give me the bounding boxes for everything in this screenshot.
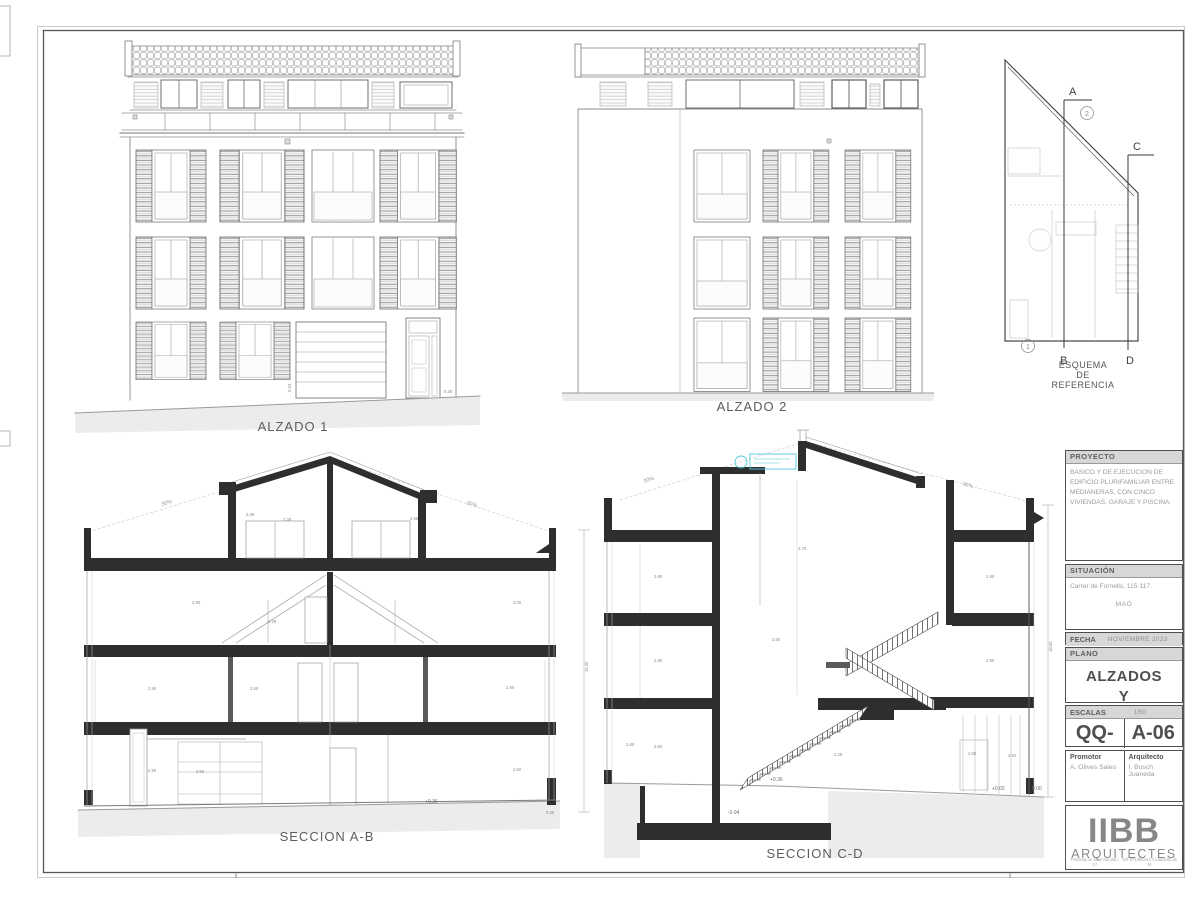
garage-door — [296, 322, 386, 398]
slope-label: 30% — [961, 481, 973, 490]
entry-door — [406, 318, 440, 398]
dim-text: 2.08 — [246, 512, 255, 517]
fecha-value: NOVIEMBRE 2023 — [1108, 636, 1168, 643]
seccion-cd-drawing: 30% 30% — [604, 430, 1054, 861]
sheet-code-left: QQ-40 — [1066, 719, 1125, 748]
dim-text: 3.00 — [513, 600, 522, 605]
proyecto-box: PROYECTO BASICO Y DE EJECUCION DE EDIFIC… — [1065, 450, 1183, 561]
studio-logo: IIBB — [1066, 815, 1182, 847]
slope-label: 30% — [643, 476, 655, 485]
proyecto-text: BASICO Y DE EJECUCION DE EDIFICIO PLURIF… — [1066, 464, 1182, 508]
arquitecto-label: Arquitecto — [1129, 754, 1179, 761]
stair-core-wall — [712, 470, 720, 823]
alzado-2-label: ALZADO 2 — [717, 399, 788, 414]
dim-text: 2.28 — [268, 619, 277, 624]
kitchen-cabinets — [178, 742, 262, 804]
reference-schema: A B C D 1 2 ESQUEMA DE REFERENCIA — [1005, 60, 1154, 390]
fecha-label: FECHA — [1066, 635, 1096, 644]
arquitecto-value: I. Bosch Juaneda — [1129, 764, 1179, 778]
roof-tiles — [645, 48, 919, 75]
dim-text: 4.70 — [798, 546, 807, 551]
stair-wall — [946, 480, 954, 625]
roof-post — [125, 41, 132, 76]
escalas-label: ESCALAS — [1066, 708, 1106, 717]
roof-slope-right — [330, 456, 426, 502]
dim-text: 2.90 — [506, 685, 515, 690]
sheet-code-right: A-06 — [1125, 719, 1183, 748]
plano-box: PLANO ALZADOS Y SECCIONES — [1065, 647, 1183, 703]
structure-cut — [604, 441, 1044, 840]
people-box: Promotor A. Olives Sales Arquitecto I. B… — [1065, 750, 1183, 802]
foundation-slab — [637, 823, 831, 840]
slope-label: 30% — [465, 500, 477, 509]
situacion-header: SITUACIÓN — [1066, 565, 1182, 578]
level-text: +0.36 — [770, 777, 783, 783]
plan-sheet: 0.60 0.36 ALZADO 1 ALZADO 2 — [0, 0, 1200, 900]
escalas-codes-box: ESCALAS 1/50 QQ-40 A-06 — [1065, 705, 1183, 747]
penthouse-openings — [600, 80, 918, 108]
dim-text: 0.36 — [546, 810, 555, 815]
seccion-ab-label: SECCION A-B — [280, 829, 375, 844]
situacion-city: MAÓ — [1066, 601, 1182, 608]
roof-slope-right — [806, 441, 920, 485]
dim-text: 2.85 — [410, 516, 419, 521]
dim-text: 2.86 — [968, 751, 977, 756]
dim-text: 2.84 — [1008, 753, 1017, 758]
dim-text: 2.90 — [148, 686, 157, 691]
floor-slab — [604, 698, 712, 709]
dim-text: 2.50 — [250, 686, 259, 691]
dim-text: 3.50 — [772, 637, 781, 642]
roof-post — [453, 41, 460, 76]
fecha-box: FECHA NOVIEMBRE 2023 — [1065, 632, 1183, 645]
terrace-slab — [84, 558, 556, 571]
dim-text: 2.50 — [654, 744, 663, 749]
marker-1: 1 — [1026, 344, 1030, 351]
escalas-value: 1/50 — [1134, 709, 1146, 716]
floor-slab — [604, 613, 712, 626]
level-text: 0.00 — [1032, 786, 1042, 792]
dim-total: 18.00 — [1048, 641, 1053, 652]
dim-text: 2.90 — [654, 574, 663, 579]
situacion-box: SITUACIÓN Carrer de Fornells, 115-117. M… — [1065, 564, 1183, 630]
dim-text: 2.50 — [196, 769, 205, 774]
proyecto-header: PROYECTO — [1066, 451, 1182, 464]
dim-total: 16.00 — [584, 661, 589, 672]
seccion-cd-label: SECCION C-D — [767, 846, 864, 861]
plano-header: PLANO — [1066, 648, 1182, 661]
esquema-title: ESQUEMA — [1059, 360, 1108, 370]
center-wall — [327, 461, 333, 558]
seccion-ab-drawing: 30% 30% — [78, 452, 590, 844]
dim-text: 0.60 — [287, 383, 292, 392]
stair-steps — [750, 720, 860, 786]
alzado-1-drawing: 0.60 0.36 ALZADO 1 — [75, 41, 480, 434]
arquitecto-cell: Arquitecto I. Bosch Juaneda — [1125, 751, 1183, 801]
marker-2: 2 — [1085, 111, 1089, 118]
dim-text: 2.29 — [834, 752, 843, 757]
level-text: +0.36 — [425, 799, 438, 805]
dim-text: 2.90 — [986, 574, 995, 579]
balcony-railing — [120, 113, 464, 137]
solar-tank-symbol — [735, 454, 796, 469]
dim-text: 2.50 — [513, 767, 522, 772]
alzado-1-label: ALZADO 1 — [258, 419, 329, 434]
dim-text: 2.90 — [654, 658, 663, 663]
esquema-title: REFERENCIA — [1051, 380, 1114, 390]
penthouse-openings — [134, 80, 452, 108]
floor-slab — [84, 645, 556, 657]
floor-slab — [84, 722, 556, 735]
roof-tiles — [132, 46, 453, 75]
promotor-label: Promotor — [1070, 754, 1120, 761]
esquema-title: DE — [1076, 370, 1090, 380]
level-text: +0.02 — [992, 786, 1005, 792]
marker-d: D — [1126, 355, 1134, 367]
dim-text: 0.36 — [444, 389, 453, 394]
dim-text: 2.38 — [283, 517, 292, 522]
terrace-slab — [604, 530, 712, 542]
situacion-address: Carrer de Fornells, 115-117. — [1066, 578, 1182, 592]
marker-c: C — [1133, 141, 1141, 153]
dim-text: 2.90 — [148, 768, 157, 773]
promotor-cell: Promotor A. Olives Sales — [1066, 751, 1125, 801]
dim-text: 2.80 — [626, 742, 635, 747]
roof-slope-left — [228, 456, 330, 494]
marker-a: A — [1069, 86, 1077, 98]
alzado-2-drawing: ALZADO 2 — [562, 44, 934, 414]
dim-text: 2.90 — [986, 658, 995, 663]
studio-footer: Passeig de Sant Nicolau, 17 telf 9713804… — [1069, 857, 1179, 867]
dim-text: 2.90 — [192, 600, 201, 605]
promotor-value: A. Olives Sales — [1070, 764, 1120, 771]
logo-box: IIBB ARQUITECTES Passeig de Sant Nicolau… — [1065, 805, 1183, 870]
level-text: -0.94 — [728, 810, 740, 816]
sheet-drawings: 0.60 0.36 ALZADO 1 ALZADO 2 — [0, 0, 1200, 900]
